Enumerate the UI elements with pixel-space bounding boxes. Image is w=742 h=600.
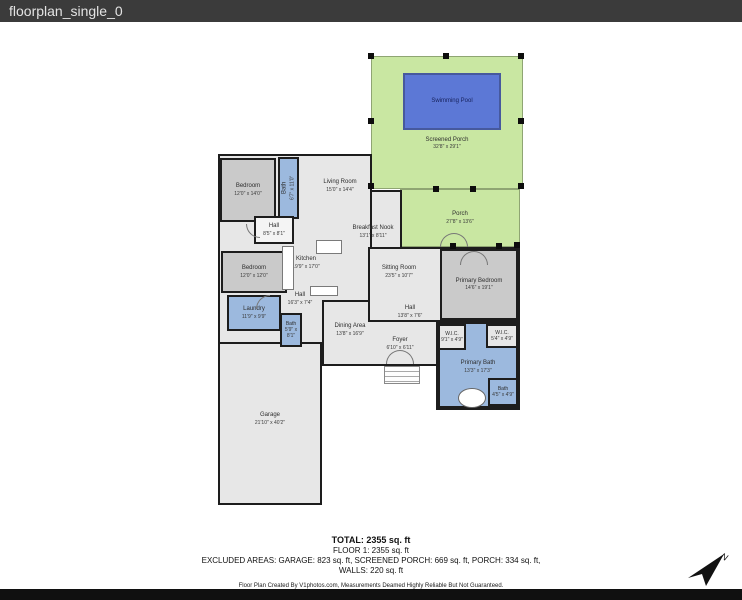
kitchen-counter-lower: [310, 286, 338, 296]
room-bath-2: Bath5'9" x 8'1": [280, 313, 302, 347]
room-label-sitting-room: Sitting Room23'5" x 10'7": [368, 265, 430, 279]
kitchen-island: [316, 240, 342, 254]
room-wic-1: W.I.C.9'1" x 4'9": [438, 324, 466, 350]
post-marker: [450, 243, 456, 249]
room-label-breakfast-nook: Breakfast Nook13'1" x 8'11": [340, 225, 406, 239]
post-marker: [368, 183, 374, 189]
area-summary: TOTAL: 2355 sq. ft FLOOR 1: 2355 sq. ft …: [0, 535, 742, 589]
post-marker: [496, 243, 502, 249]
room-label-living-room: Living Room15'0" x 14'4": [308, 179, 372, 193]
post-marker: [368, 53, 374, 59]
post-marker: [518, 183, 524, 189]
room-label-dining-area: Dining Area13'8" x 16'9": [320, 323, 380, 337]
room-bath-1: Bath6'7" x 11'0": [278, 157, 299, 219]
summary-total: TOTAL: 2355 sq. ft: [0, 535, 742, 546]
bathtub-icon: [458, 388, 486, 408]
room-bath-3: Bath4'5" x 4'9": [488, 378, 518, 406]
room-wic-2: W.I.C.5'4" x 4'9": [486, 324, 518, 348]
post-marker: [470, 186, 476, 192]
post-marker: [514, 242, 520, 248]
summary-excluded: EXCLUDED AREAS: GARAGE: 823 sq. ft, SCRE…: [0, 556, 742, 566]
room-laundry: Laundry11'9" x 9'9": [227, 295, 281, 331]
post-marker: [518, 53, 524, 59]
summary-walls: WALLS: 220 sq. ft: [0, 566, 742, 576]
room-swimming-pool: Swimming Pool: [403, 73, 501, 130]
post-marker: [368, 118, 374, 124]
kitchen-counter: [282, 246, 294, 290]
compass-n-label: N: [719, 551, 730, 563]
window-title: floorplan_single_0: [9, 3, 123, 19]
bottom-black-bar: [0, 589, 742, 600]
post-marker: [518, 118, 524, 124]
post-marker: [433, 186, 439, 192]
room-bedroom-1: Bedroom12'0" x 14'0": [220, 158, 276, 222]
room-hall-1: Hall8'5" x 8'1": [254, 216, 294, 244]
room-label-garage: Garage21'10" x 40'2": [240, 412, 300, 426]
post-marker: [443, 53, 449, 59]
room-label-hall-3: Hall13'8" x 7'6": [384, 305, 436, 319]
summary-floor1: FLOOR 1: 2355 sq. ft: [0, 546, 742, 556]
window-title-bar: floorplan_single_0: [0, 0, 742, 22]
compass-north-icon: N: [686, 548, 732, 595]
entry-steps: [384, 366, 420, 384]
room-label-foyer: Foyer6'10" x 6'11": [380, 337, 420, 351]
